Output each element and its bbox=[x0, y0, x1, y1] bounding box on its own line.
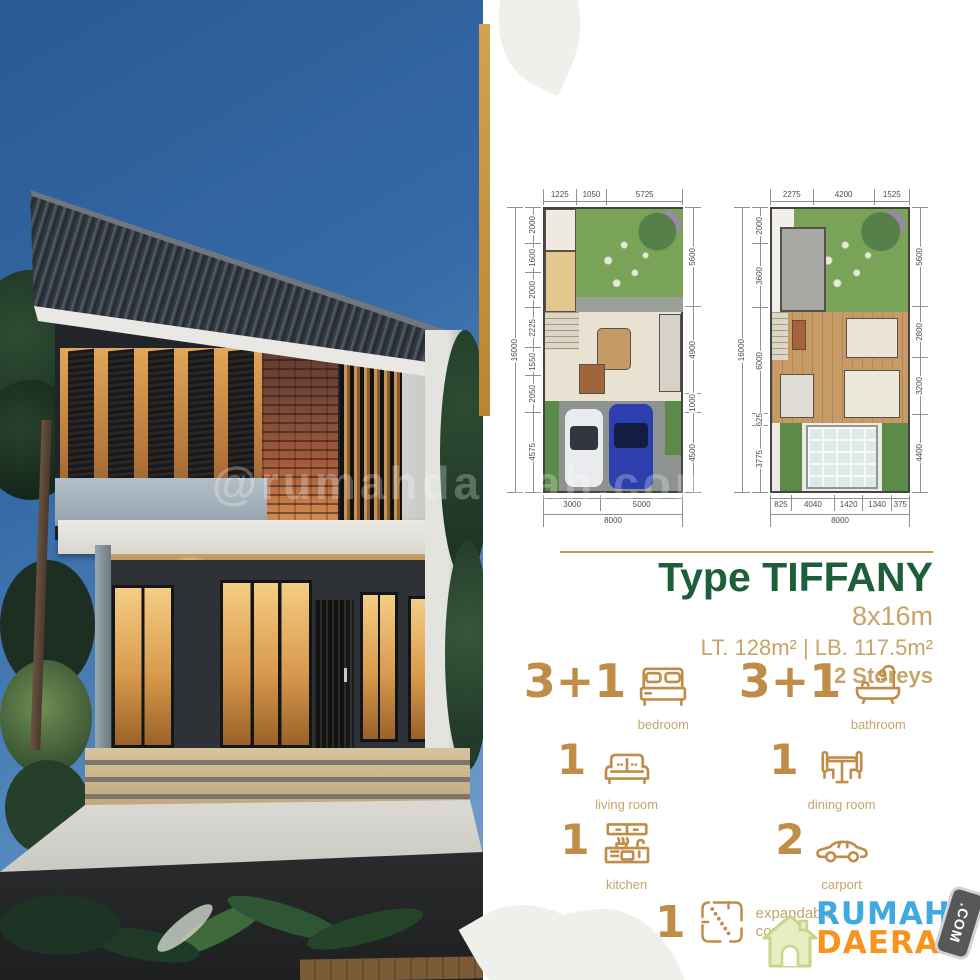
wood-deck-strip bbox=[300, 956, 483, 980]
dim-right: 5600280032004400 bbox=[912, 207, 928, 493]
gold-divider-bar bbox=[479, 24, 490, 416]
lit-window bbox=[112, 585, 174, 748]
feature-list: 3+1 bedroom 3+1 bbox=[500, 660, 940, 900]
dim-bottom-total: 8000 bbox=[543, 511, 683, 527]
feature-carport: 2 carport bbox=[715, 820, 930, 892]
lit-shrub bbox=[0, 660, 92, 775]
planting-strip bbox=[665, 401, 681, 455]
divider-line bbox=[560, 551, 933, 553]
house-icon bbox=[758, 910, 822, 974]
lit-window bbox=[220, 580, 312, 748]
blue-car bbox=[609, 404, 653, 489]
kitchen-counter bbox=[659, 314, 681, 392]
bedroom-count: 3+1 bbox=[524, 660, 627, 704]
feature-bedroom: 3+1 bedroom bbox=[500, 660, 715, 732]
skylight-section bbox=[772, 423, 908, 491]
type-name: Type TIFFANY bbox=[520, 556, 933, 599]
carport-canopy bbox=[58, 520, 468, 554]
carport-column bbox=[95, 545, 111, 750]
feature-living-room: 1 living room bbox=[500, 740, 715, 812]
kitchen-label: kitchen bbox=[606, 877, 647, 892]
floorplan-ground: 122510505725 16000 200016002000222515502… bbox=[505, 183, 715, 533]
roof-deck bbox=[780, 227, 826, 312]
stairs bbox=[545, 312, 579, 350]
white-car bbox=[565, 409, 603, 487]
planting-strip bbox=[545, 401, 559, 491]
house-photo bbox=[0, 0, 483, 980]
dining-table-icon bbox=[814, 740, 870, 796]
dim-left-total: 16000 bbox=[507, 207, 523, 493]
dim-right: 5600490010004500 bbox=[685, 207, 701, 493]
floorplan-upper-canvas bbox=[770, 207, 910, 493]
dim-bottom: 825404014201340375 bbox=[770, 495, 910, 511]
entrance-door bbox=[314, 600, 354, 750]
bathroom-label: bathroom bbox=[851, 717, 906, 732]
size-line: 8x16m bbox=[520, 601, 933, 632]
rumahdaerah-logo: RUMAH DAERAH .COM bbox=[758, 894, 980, 980]
dim-bottom: 30005000 bbox=[543, 495, 683, 511]
foreground-plant bbox=[0, 895, 120, 955]
flyer-page: @rumahdaerah.com 122510505725 16000 2000… bbox=[0, 0, 980, 980]
door-handle bbox=[344, 668, 347, 682]
kitchen-icon bbox=[599, 820, 655, 876]
planting-strip bbox=[882, 423, 908, 491]
garden-path bbox=[576, 297, 683, 312]
dim-top: 122510505725 bbox=[543, 189, 683, 205]
expandable-count: 1 bbox=[655, 897, 686, 948]
floorplan-ground-canvas bbox=[543, 207, 683, 493]
leaf-decoration bbox=[471, 0, 607, 96]
bedroom-area bbox=[772, 312, 908, 423]
carport-count: 2 bbox=[775, 820, 804, 860]
bathtub-icon bbox=[850, 660, 906, 716]
feature-bathroom: 3+1 bathroom bbox=[715, 660, 930, 732]
dim-left-total: 16000 bbox=[734, 207, 750, 493]
feature-kitchen: 1 kitchen bbox=[500, 820, 715, 892]
dim-left: 2000160020002225155020504575 bbox=[525, 207, 541, 493]
stairs bbox=[772, 312, 788, 360]
logo-badge-text: .COM bbox=[946, 901, 973, 944]
bathroom-room bbox=[780, 374, 814, 418]
carport-label: carport bbox=[821, 877, 861, 892]
floor-slab-band bbox=[55, 478, 267, 526]
planting-strip bbox=[780, 423, 802, 491]
living-dining-area bbox=[545, 312, 681, 401]
master-bed bbox=[844, 370, 900, 418]
living-room-label: living room bbox=[595, 797, 658, 812]
bedroom-label: bedroom bbox=[638, 717, 689, 732]
dim-bottom-total: 8000 bbox=[770, 511, 910, 527]
roof bbox=[0, 140, 483, 400]
bathroom-room bbox=[545, 209, 576, 251]
dim-top: 227542001525 bbox=[770, 189, 910, 205]
floorplan-icon bbox=[696, 896, 748, 948]
dining-room-label: dining room bbox=[808, 797, 876, 812]
kitchen-count: 1 bbox=[560, 820, 589, 860]
dim-left: 2000360060006253775 bbox=[752, 207, 768, 493]
sofa-icon bbox=[599, 740, 655, 796]
side-foliage bbox=[445, 540, 483, 770]
bathroom-count: 3+1 bbox=[739, 660, 842, 704]
living-room-count: 1 bbox=[557, 740, 586, 780]
maid-bedroom bbox=[545, 251, 576, 312]
sofa bbox=[792, 320, 806, 350]
skylight-glass bbox=[806, 425, 878, 489]
feature-dining-room: 1 dining room bbox=[715, 740, 930, 812]
car-icon bbox=[814, 820, 870, 876]
paved-driveway bbox=[85, 748, 470, 806]
floorplan-upper: 227542001525 16000 2000360060006253775 5… bbox=[732, 183, 942, 533]
lit-window bbox=[360, 592, 398, 742]
carport-area bbox=[545, 401, 681, 491]
bed bbox=[846, 318, 898, 358]
dining-room-count: 1 bbox=[769, 740, 798, 780]
bed-icon bbox=[635, 660, 691, 716]
sofa bbox=[579, 364, 605, 394]
